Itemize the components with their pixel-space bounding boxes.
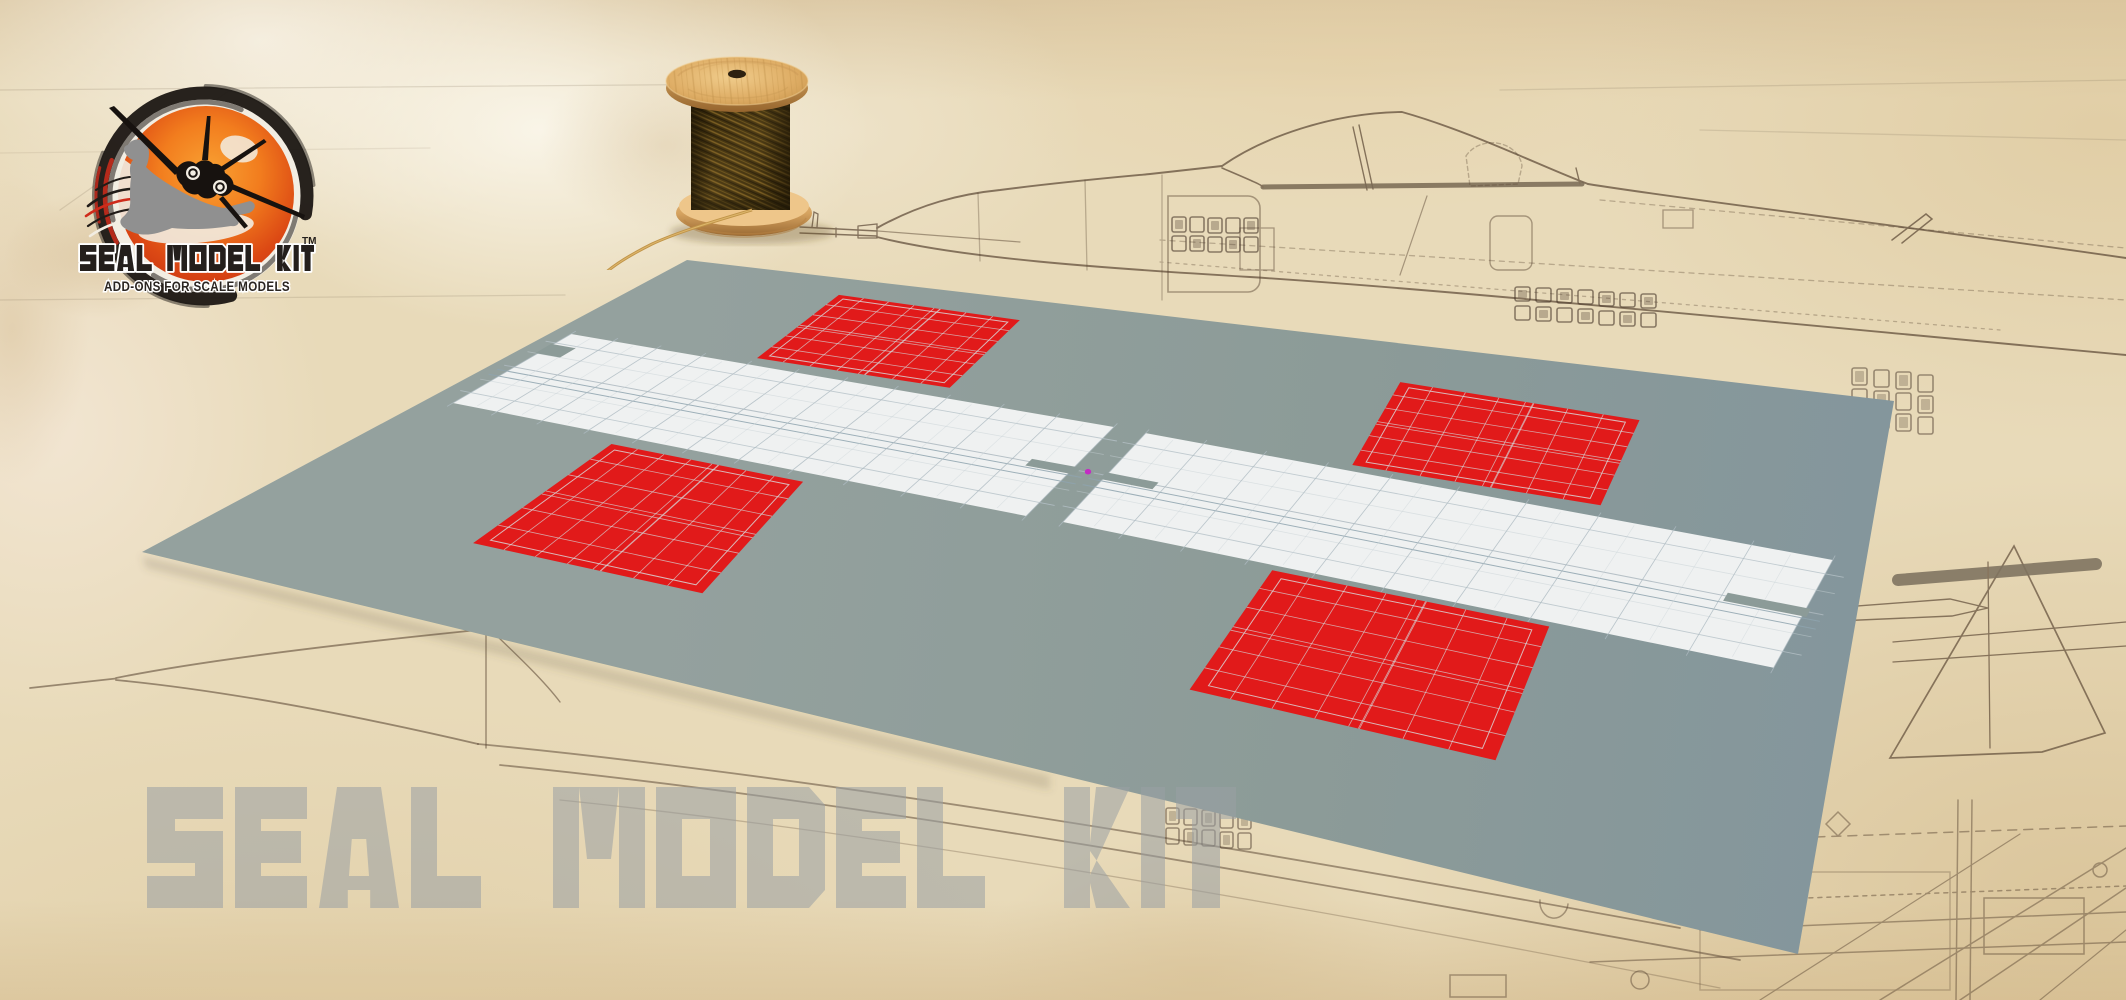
svg-text:TM: TM [302, 236, 316, 247]
svg-text:ADD-ONS FOR SCALE MODELS: ADD-ONS FOR SCALE MODELS [104, 279, 290, 294]
